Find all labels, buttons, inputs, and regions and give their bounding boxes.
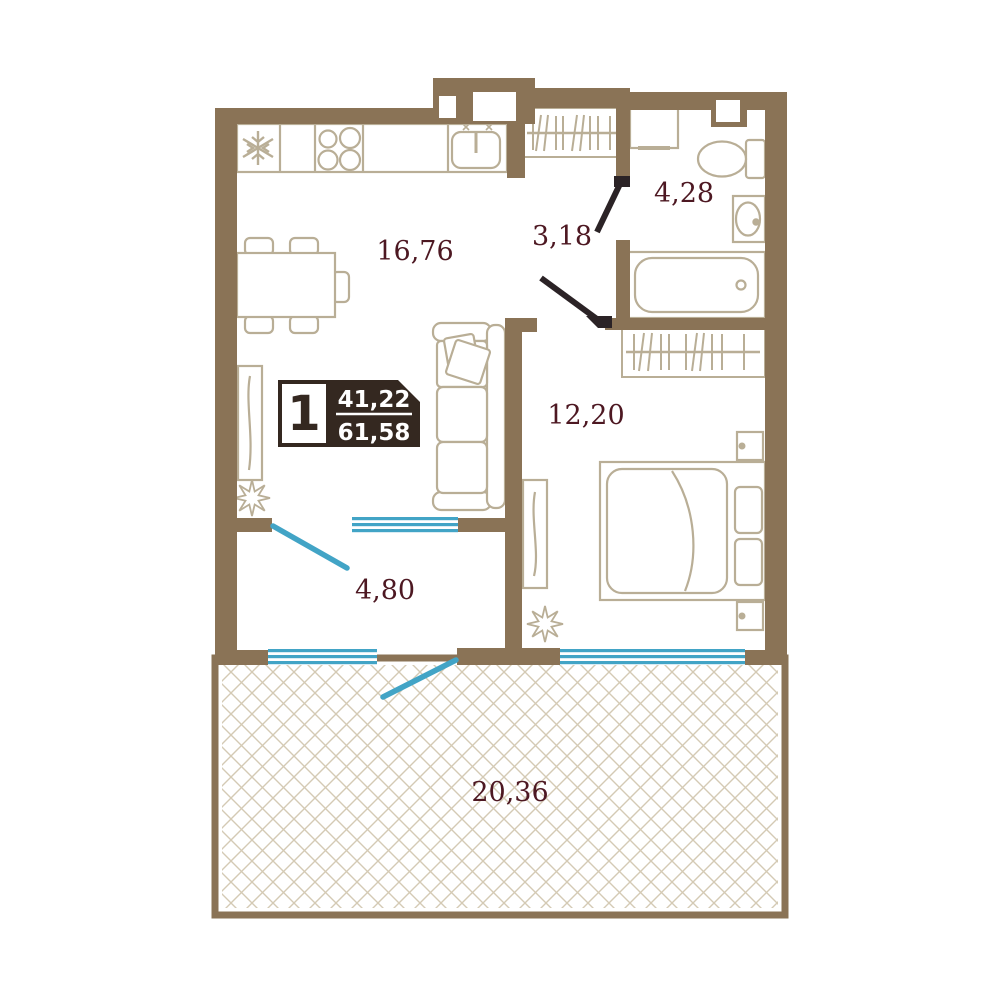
bedroom-wardrobe-hangers-icon (622, 327, 765, 377)
washing-machine-icon (630, 108, 678, 148)
label-bathroom-area: 4,28 (654, 178, 714, 209)
badge-total-area: 61,58 (338, 420, 411, 446)
label-kitchen-living-area: 16,76 (376, 236, 453, 267)
bathtub-icon (628, 252, 765, 318)
label-bedroom-area: 12,20 (547, 400, 624, 431)
plant-icon (527, 606, 563, 642)
badge-rooms-count: 1 (287, 386, 320, 442)
badge-living-area: 41,22 (338, 387, 411, 413)
bed-icon (600, 432, 765, 630)
label-entry-hall-area: 4,80 (355, 575, 415, 606)
living-cabinet (238, 366, 262, 480)
label-hallway-area: 3,18 (532, 221, 592, 252)
sofa-icon (433, 323, 505, 510)
plant-icon (234, 480, 270, 516)
apartment-badge: 1 41,22 61,58 (278, 380, 420, 447)
label-terrace-area: 20,36 (471, 777, 548, 808)
floor-plan-svg: 16,76 3,18 4,28 12,20 4,80 20,36 1 41,22… (0, 0, 1000, 1000)
toilet-icon (698, 140, 765, 178)
floor-plan-canvas: 16,76 3,18 4,28 12,20 4,80 20,36 1 41,22… (0, 0, 1000, 1000)
dining-table-icon (237, 238, 349, 333)
hallway-wardrobe-hangers-icon (523, 108, 620, 157)
bedroom-cabinet (523, 480, 547, 588)
wash-basin-icon (733, 196, 765, 242)
